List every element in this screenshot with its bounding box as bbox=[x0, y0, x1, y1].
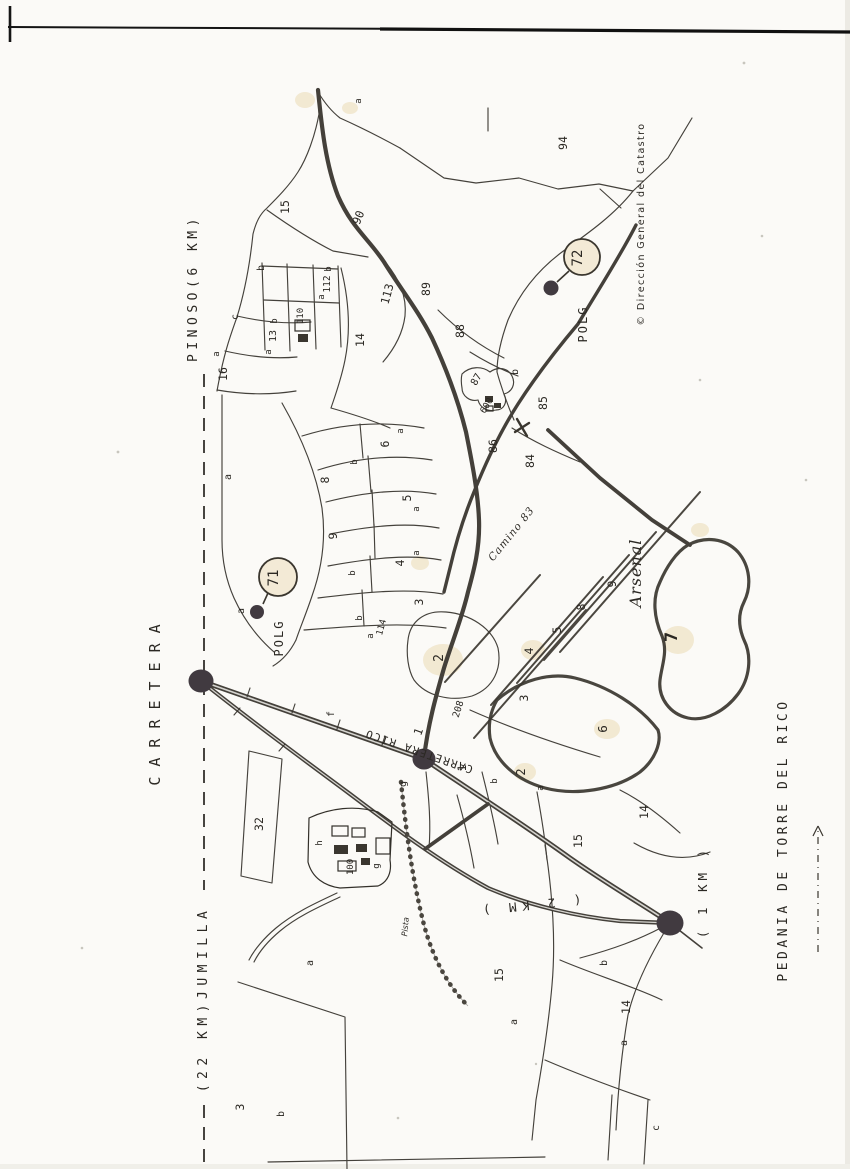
label-camino-83: Camino 83 bbox=[486, 505, 537, 564]
parcel-label: 15 bbox=[278, 200, 292, 214]
parcel-label: 16 bbox=[216, 367, 230, 381]
label-pinoso: PINOSO(6 KM) bbox=[186, 214, 201, 362]
margin-labels: CARRETERAPINOSO(6 KM)(22 KM)JUMILLAPEDAN… bbox=[146, 123, 791, 1093]
parcel-label: a bbox=[366, 633, 376, 638]
parcel-label: 84 bbox=[523, 454, 537, 468]
parcel-label: a bbox=[619, 1040, 630, 1046]
marker-leader-line bbox=[263, 593, 268, 604]
polygon-sub-label: a bbox=[236, 608, 247, 614]
parcel-label: h bbox=[315, 840, 325, 845]
parcel-label: b bbox=[510, 369, 521, 375]
parcel-label: c bbox=[230, 314, 241, 320]
parcel-label: 86 bbox=[486, 439, 500, 453]
polygon-number: 72 bbox=[570, 250, 586, 267]
parcel-label: 5 bbox=[550, 627, 564, 634]
map-canvas: 71POLGa72POLG 15bca16aa13b110a112b149011… bbox=[0, 0, 850, 1169]
marker-dot-icon bbox=[544, 281, 559, 296]
parcel-label: b bbox=[599, 960, 610, 966]
parcel-label: 8 bbox=[574, 603, 588, 610]
parcel-label: 5 bbox=[400, 495, 414, 502]
parcel-label: 15 bbox=[571, 834, 585, 848]
parcel-label: 1 bbox=[410, 726, 426, 737]
road-lower-branch bbox=[201, 681, 670, 923]
parcel-label: a bbox=[354, 98, 364, 103]
polygon-label: POLG bbox=[576, 306, 590, 343]
parcel-label: 87 bbox=[469, 372, 485, 388]
parcel-label: 4 bbox=[393, 559, 407, 566]
parcel-label: 9 bbox=[326, 532, 340, 539]
parcel-label: 8 bbox=[318, 476, 332, 483]
parcel-label: g bbox=[398, 781, 409, 787]
polg-71-marker: 71POLGa bbox=[236, 558, 297, 656]
roads bbox=[201, 90, 702, 948]
road-connector bbox=[425, 804, 488, 849]
label-arsenal: Arsenal bbox=[626, 539, 645, 610]
parcel-label: b bbox=[324, 266, 334, 271]
label-jumilla: (22 KM)JUMILLA bbox=[196, 906, 211, 1093]
parcel-label: 114 bbox=[375, 618, 389, 636]
parcel-label: 15 bbox=[492, 968, 506, 982]
parcel-label: a bbox=[509, 1019, 520, 1025]
junction-dot bbox=[189, 670, 214, 693]
parcel-label: 9 bbox=[605, 580, 619, 587]
parcel-label: b bbox=[276, 1111, 287, 1117]
parcel-label: a bbox=[264, 349, 274, 354]
polygon-label: POLG bbox=[272, 620, 286, 657]
parcel-label: 94 bbox=[556, 136, 570, 150]
heavy-parcel-outlines bbox=[489, 540, 749, 792]
parcel-label: 6 bbox=[378, 440, 392, 447]
parcel-label: b bbox=[348, 570, 358, 575]
parcel-label: b bbox=[350, 459, 360, 464]
parcel-label: 100 bbox=[346, 859, 356, 875]
parcel-label: f bbox=[326, 711, 337, 717]
parcel-label: b bbox=[256, 265, 267, 271]
polg-72-marker: 72POLG bbox=[544, 239, 601, 342]
parcel-label: 89 bbox=[419, 282, 433, 296]
parcel-label: g bbox=[372, 863, 382, 868]
parcel-label: 2 bbox=[514, 768, 528, 775]
parcel-label: 14 bbox=[637, 805, 651, 819]
scanned-cadastral-map-page: Croquis catastral - Pedania de Torre del… bbox=[0, 0, 850, 1169]
parcel-label: 3 bbox=[517, 694, 531, 701]
parcel-label: 85 bbox=[536, 396, 550, 410]
parcel-label: a bbox=[536, 785, 546, 790]
chain-line bbox=[401, 782, 468, 1006]
parcel-label: a bbox=[412, 506, 422, 511]
parcel-label: a bbox=[317, 294, 327, 299]
polygon-number: 71 bbox=[266, 570, 282, 587]
label-1km: ( 1 KM ) bbox=[695, 846, 710, 938]
parcel-label: 13 bbox=[268, 330, 279, 342]
parcel-label: a bbox=[396, 428, 406, 433]
junction-dots bbox=[189, 670, 684, 936]
parcel-label: b bbox=[355, 615, 365, 620]
parcel-label: a bbox=[212, 351, 222, 356]
marker-dot-icon bbox=[250, 605, 264, 619]
label-pedania: PEDANIA DE TORRE DEL RICO bbox=[776, 698, 791, 981]
parcel-label: 4 bbox=[522, 647, 536, 654]
parcel-label: 208 bbox=[451, 699, 467, 719]
parcel-label: a bbox=[412, 550, 422, 555]
parcel-label: 88 bbox=[453, 324, 467, 338]
label-pista: Pista bbox=[400, 917, 411, 937]
parcel-label: 32 bbox=[252, 817, 266, 831]
parcel-label: b bbox=[270, 318, 280, 323]
parcel-label: 110 bbox=[296, 308, 306, 324]
parcel-label: a bbox=[223, 474, 234, 480]
parcel-label: 14 bbox=[619, 1000, 633, 1014]
parcel-label: a bbox=[305, 960, 316, 966]
parcel-label: 3 bbox=[233, 1103, 247, 1110]
label-carretera: CARRETERA bbox=[146, 614, 164, 785]
buildings bbox=[295, 320, 501, 888]
parcel-label: 2 bbox=[432, 654, 447, 662]
strip-parcel-boundaries bbox=[445, 492, 700, 738]
parcel-label: 6 bbox=[595, 725, 610, 733]
label-copyright: © Dirección General del Catastro bbox=[636, 123, 647, 326]
parcel-label: 14 bbox=[353, 333, 367, 347]
parcel-label: 113 bbox=[378, 282, 397, 306]
parcel-label: b bbox=[490, 778, 500, 783]
parcel-label: 3 bbox=[412, 598, 426, 605]
marker-leader-line bbox=[557, 271, 569, 282]
parcel-label: 7 bbox=[662, 632, 682, 642]
parcel-label: c bbox=[651, 1125, 662, 1131]
scan-artifacts bbox=[0, 0, 850, 1169]
junction-dot bbox=[657, 911, 684, 936]
pedania-arrow bbox=[813, 826, 823, 952]
parcel-label: 112 bbox=[322, 275, 333, 292]
